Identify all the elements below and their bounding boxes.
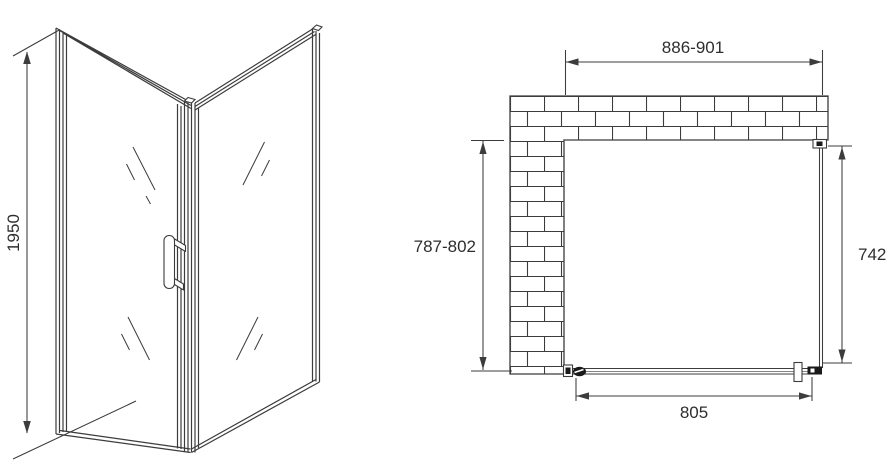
door-width-dimension-label: 805 xyxy=(680,403,708,422)
dimension-top-width: 886-901 xyxy=(566,38,823,95)
height-extension-lines xyxy=(13,30,136,460)
door-plan xyxy=(564,363,823,382)
arrow-down-icon xyxy=(838,350,845,363)
corner-connector-notch xyxy=(811,369,815,373)
depth-extension-lines xyxy=(471,141,512,372)
arrow-down-icon xyxy=(479,357,486,370)
brick-wall xyxy=(510,96,828,374)
dimension-right-panel: 742 xyxy=(823,146,886,363)
arrow-up-icon xyxy=(23,52,31,65)
arrow-right-icon xyxy=(810,58,823,65)
panel-extension-lines xyxy=(823,146,852,363)
top-width-dimension-label: 886-901 xyxy=(662,38,724,57)
arrow-right-icon xyxy=(799,392,812,399)
rear-post-cap xyxy=(313,25,323,31)
bracket-clamp xyxy=(817,142,823,147)
door-bottom-rail xyxy=(56,431,191,453)
dimension-door-width: 805 xyxy=(576,377,812,422)
bracket-clamp-left xyxy=(566,368,571,375)
corner-connector xyxy=(808,367,823,375)
drawing-svg: 1950 886-901 xyxy=(0,0,896,465)
fixed-panel-glass xyxy=(820,148,823,368)
arrow-left-icon xyxy=(577,392,590,399)
height-dimension-label: 1950 xyxy=(4,214,23,252)
door-hinge-post xyxy=(56,28,67,434)
door-shine-lower xyxy=(122,317,150,360)
arrow-up-icon xyxy=(838,147,845,160)
left-depth-dimension-label: 787-802 xyxy=(414,237,476,256)
dimension-left-depth: 787-802 xyxy=(414,141,512,372)
side-shine-lower xyxy=(237,317,263,360)
side-shine-upper xyxy=(243,142,270,185)
fixed-panel-plan xyxy=(813,140,827,369)
door-edge-stile xyxy=(178,104,182,449)
door-handle xyxy=(164,236,186,291)
perspective-view: 1950 xyxy=(4,25,322,459)
corner-post xyxy=(185,98,196,453)
side-bottom-rail xyxy=(192,380,320,453)
handle-bar xyxy=(164,236,175,289)
side-top-rail xyxy=(195,29,317,110)
side-panel xyxy=(192,25,323,453)
arrow-up-icon xyxy=(479,142,486,155)
dimension-height: 1950 xyxy=(4,30,136,460)
arrow-down-icon xyxy=(23,421,31,434)
door-width-extension-lines xyxy=(576,377,812,401)
plan-view: 886-901 787-802 742 805 xyxy=(414,38,887,422)
right-panel-dimension-label: 742 xyxy=(858,245,886,264)
shower-enclosure-technical-drawing: 1950 886-901 xyxy=(0,0,896,465)
arrow-left-icon xyxy=(566,58,579,65)
door-shine-upper xyxy=(127,147,156,204)
side-rear-post xyxy=(313,29,320,382)
door-handle-plan xyxy=(794,363,802,382)
door-top-rail xyxy=(56,28,191,109)
